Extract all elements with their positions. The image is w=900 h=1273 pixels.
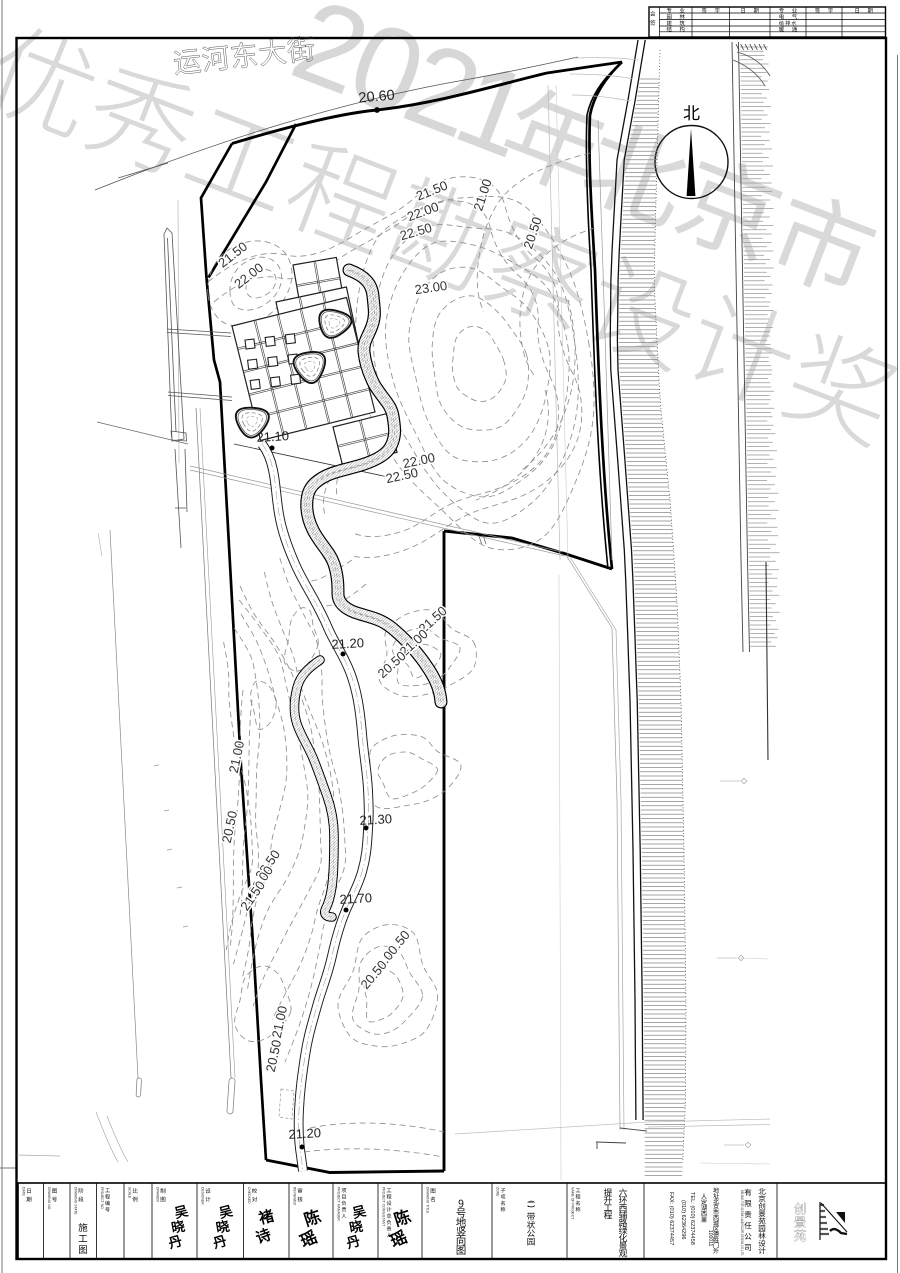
- svg-text:21.50: 21.50: [215, 239, 250, 271]
- svg-text:DATE: DATE: [22, 1187, 26, 1197]
- svg-text:DRAWING STATE: DRAWING STATE: [74, 1187, 78, 1215]
- svg-text:( ): ( ): [527, 1200, 536, 1208]
- svg-text:20.60: 20.60: [358, 87, 396, 106]
- svg-text:ZONE: ZONE: [496, 1187, 500, 1197]
- svg-text:DRAWING TITLE: DRAWING TITLE: [426, 1187, 430, 1214]
- svg-text:20.50: 20.50: [219, 809, 240, 844]
- svg-text:CHECKED: CHECKED: [247, 1187, 251, 1204]
- svg-text:TEL: (010) 62374458: TEL: (010) 62374458: [689, 1192, 695, 1245]
- svg-text:PROJECT CONSULTANT: PROJECT CONSULTANT: [382, 1187, 386, 1226]
- svg-text:21.20: 21.20: [288, 1125, 321, 1142]
- svg-text:PROJECT MANAGER: PROJECT MANAGER: [337, 1187, 341, 1221]
- svg-text:DRAWER: DRAWER: [156, 1187, 160, 1202]
- svg-text:21.70: 21.70: [339, 890, 372, 907]
- svg-text:PROJECT NO.: PROJECT NO.: [100, 1187, 104, 1210]
- svg-text:100011: 100011: [707, 1230, 713, 1247]
- svg-text:DRAWING NO.: DRAWING NO.: [47, 1187, 51, 1210]
- svg-text:21.00: 21.00: [269, 1004, 290, 1039]
- svg-text:BEIJING TOP-SCENE LANDSCAPE DE: BEIJING TOP-SCENE LANDSCAPE DESIGN CO.,L…: [740, 1190, 744, 1256]
- svg-text:SCALE: SCALE: [128, 1187, 132, 1199]
- svg-text:21.00: 21.00: [226, 739, 247, 774]
- svg-text:21.10: 21.10: [256, 428, 289, 445]
- svg-text:DESIGNER: DESIGNER: [201, 1187, 205, 1205]
- svg-text:20.50: 20.50: [263, 1038, 284, 1073]
- svg-text:21.30: 21.30: [359, 811, 392, 828]
- svg-text:(010) 62364296: (010) 62364296: [680, 1200, 686, 1240]
- svg-text:FAX: (010) 62374457: FAX: (010) 62374457: [668, 1192, 674, 1245]
- svg-text:21.00: 21.00: [470, 177, 494, 213]
- svg-text:REVIEWED: REVIEWED: [293, 1187, 297, 1206]
- svg-text:23.00: 23.00: [414, 278, 448, 297]
- svg-text:22.00: 22.00: [231, 260, 266, 292]
- svg-text:21.20: 21.20: [331, 635, 364, 652]
- svg-text:NAME OF PROJECT: NAME OF PROJECT: [571, 1187, 575, 1219]
- svg-text:22.50: 22.50: [384, 465, 419, 486]
